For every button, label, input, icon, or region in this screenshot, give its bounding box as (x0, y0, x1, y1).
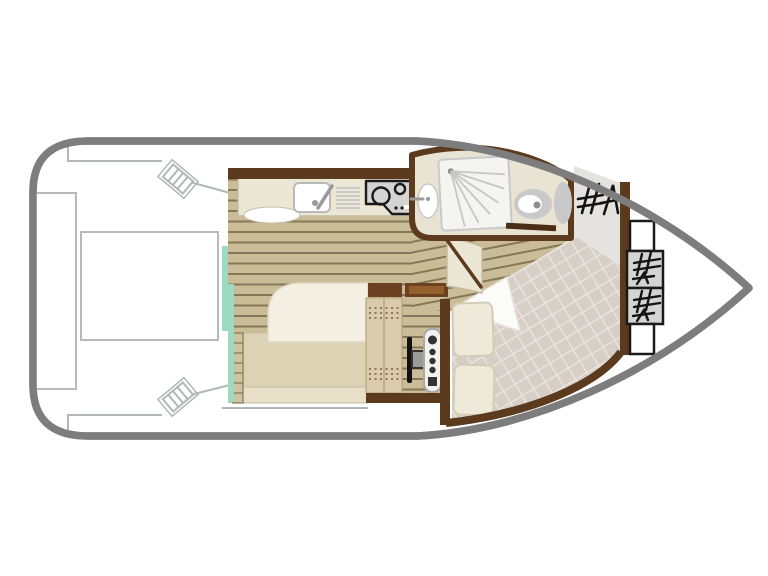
floor-plan-canvas (0, 0, 768, 576)
berth-mattress (268, 283, 368, 342)
counter-shelf (244, 207, 300, 223)
bow-cabin-left-wall (440, 299, 450, 425)
side-shelf-ladder (233, 333, 243, 403)
toilet-icon (514, 189, 552, 219)
berth-foot-strip (242, 387, 368, 403)
bathroom (411, 148, 572, 238)
instrument-console (424, 329, 441, 392)
sliding-glass-door-outer (222, 246, 228, 331)
deck-table (81, 232, 218, 340)
bench-seat (33, 193, 76, 389)
helm-bench (366, 298, 402, 393)
sliding-glass-door-inner (228, 284, 234, 402)
galley (238, 178, 412, 223)
galley-top-wall (228, 168, 414, 179)
boat-floor-plan (0, 0, 768, 576)
helm-cabinet-right-top (409, 286, 444, 294)
shower (438, 156, 512, 231)
locker-box-bottom (630, 324, 654, 354)
helm-cabinet-left (368, 283, 402, 297)
pillow-top (452, 302, 494, 356)
helm-bottom-wall (366, 393, 450, 403)
cistern (554, 182, 572, 224)
pillow-bottom (453, 364, 494, 415)
locker-box-top (630, 221, 654, 251)
